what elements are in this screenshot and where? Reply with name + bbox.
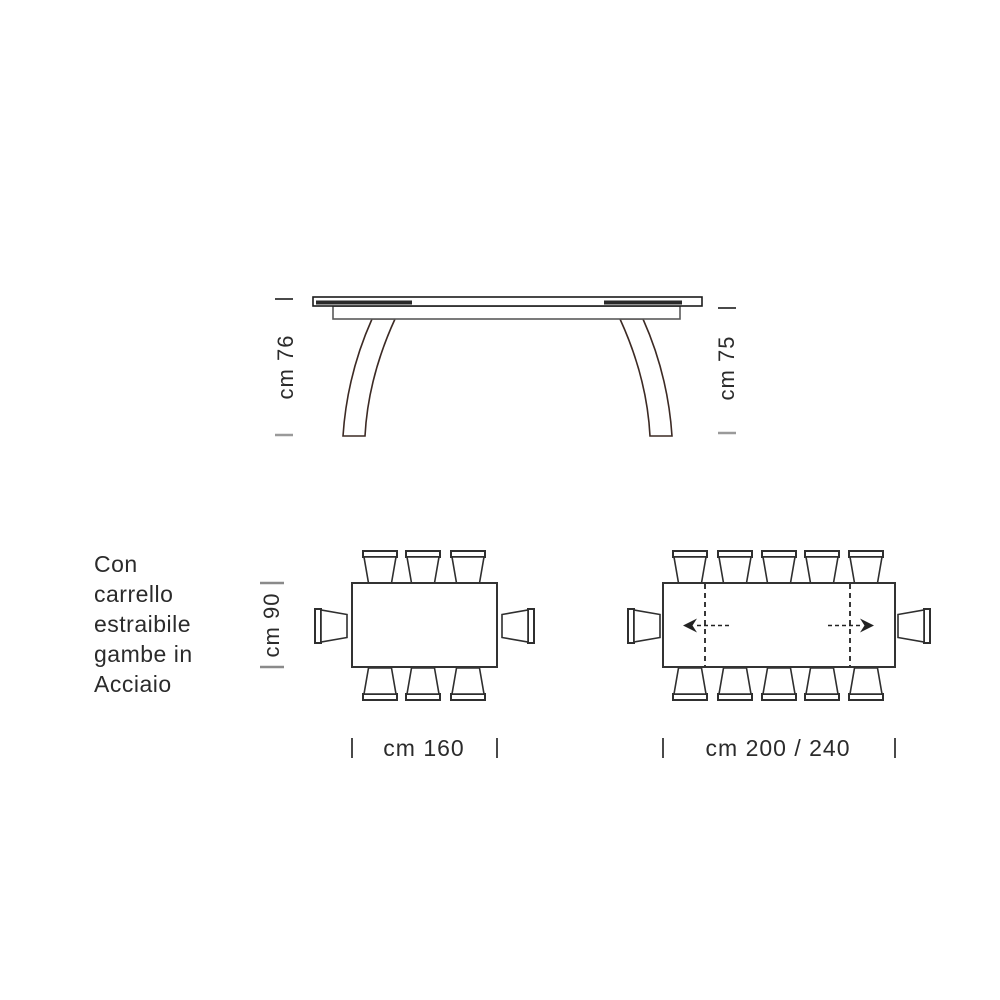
height-dimension-left: cm 76 xyxy=(273,299,298,435)
dimension-tick xyxy=(662,738,664,758)
chair-top-view xyxy=(718,551,752,583)
tabletop-plan-small xyxy=(352,583,497,667)
plan-small-table xyxy=(315,551,534,700)
chair-top-view xyxy=(849,551,883,583)
chair-top-view xyxy=(718,668,752,700)
depth-label: cm 90 xyxy=(259,593,284,658)
table-leg-right xyxy=(620,319,672,436)
table-leg-left xyxy=(343,319,395,436)
table-top-slab xyxy=(313,297,702,306)
plan-large-table xyxy=(628,551,930,700)
chair-top-view xyxy=(805,551,839,583)
chair-top-view xyxy=(805,668,839,700)
chair-top-view xyxy=(762,668,796,700)
chair-top-view xyxy=(673,668,707,700)
chair-top-view xyxy=(898,609,930,643)
depth-dimension: cm 90 xyxy=(259,583,284,667)
chair-top-view xyxy=(762,551,796,583)
table-plan-views: cm 90 xyxy=(250,540,950,710)
chair-top-view xyxy=(363,551,397,583)
dimension-tick xyxy=(496,738,498,758)
height-dimension-right: cm 75 xyxy=(714,308,739,433)
width-label-large: cm 200 / 240 xyxy=(668,735,888,762)
table-side-view: cm 76 cm 75 xyxy=(255,280,765,455)
chair-top-view xyxy=(628,609,660,643)
table-apron xyxy=(333,306,680,319)
chair-top-view xyxy=(406,551,440,583)
height-label-left: cm 76 xyxy=(273,335,298,400)
product-note: Con carrello estraibile gambe in Acciaio xyxy=(94,549,264,699)
chair-top-view xyxy=(363,668,397,700)
dimension-tick xyxy=(894,738,896,758)
chair-top-view xyxy=(315,609,347,643)
width-label-small: cm 160 xyxy=(354,735,494,762)
chair-top-view xyxy=(451,668,485,700)
product-dimension-diagram: cm 76 cm 75 Con carrello estraibile gamb… xyxy=(0,0,1000,1000)
chair-top-view xyxy=(849,668,883,700)
height-label-right: cm 75 xyxy=(714,336,739,401)
extension-leaf-right xyxy=(604,301,682,305)
extension-leaf-left xyxy=(316,301,412,305)
dimension-tick xyxy=(351,738,353,758)
chair-top-view xyxy=(451,551,485,583)
chair-top-view xyxy=(406,668,440,700)
chair-top-view xyxy=(673,551,707,583)
chair-top-view xyxy=(502,609,534,643)
